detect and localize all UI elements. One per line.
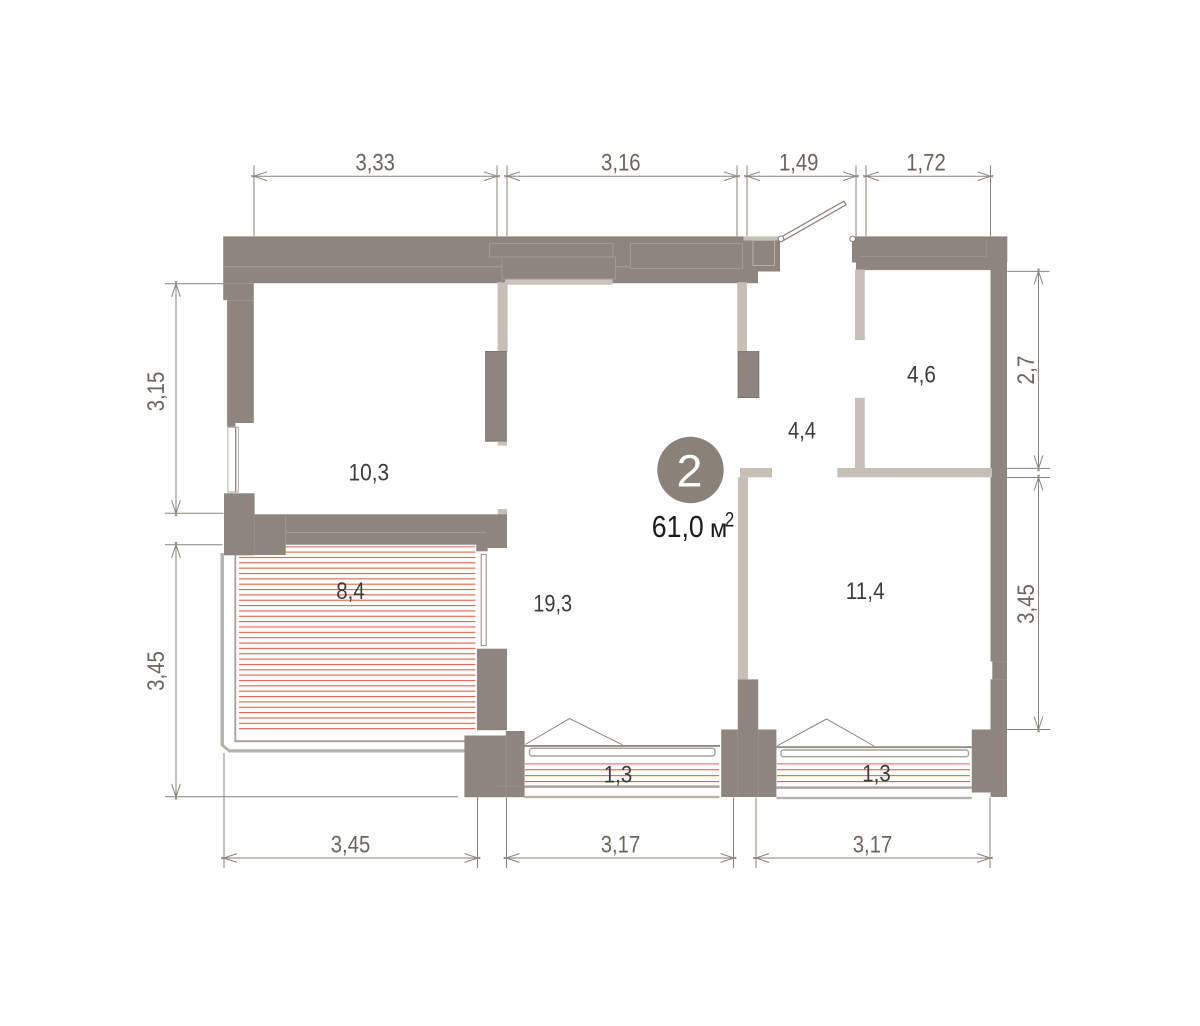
svg-text:8,4: 8,4 [336,578,364,605]
svg-text:2: 2 [677,446,703,497]
svg-text:3,17: 3,17 [853,832,893,859]
svg-text:10,3: 10,3 [349,460,390,487]
svg-text:4,4: 4,4 [788,418,816,445]
svg-text:3,45: 3,45 [143,651,170,691]
svg-text:2,7: 2,7 [1013,356,1040,385]
svg-text:1,3: 1,3 [604,762,633,789]
svg-text:3,15: 3,15 [143,372,170,412]
svg-text:3,45: 3,45 [331,832,371,859]
svg-text:4,6: 4,6 [907,362,936,389]
svg-text:1,3: 1,3 [862,761,891,788]
svg-text:3,45: 3,45 [1013,584,1040,624]
svg-text:11,4: 11,4 [846,578,885,605]
svg-text:2: 2 [725,507,735,531]
svg-text:3,17: 3,17 [601,832,641,859]
svg-text:1,72: 1,72 [906,150,946,177]
svg-text:3,16: 3,16 [601,150,641,177]
svg-text:19,3: 19,3 [533,590,572,617]
svg-text:61,0: 61,0 [652,509,704,544]
svg-text:3,33: 3,33 [355,150,395,177]
svg-text:1,49: 1,49 [779,150,819,177]
